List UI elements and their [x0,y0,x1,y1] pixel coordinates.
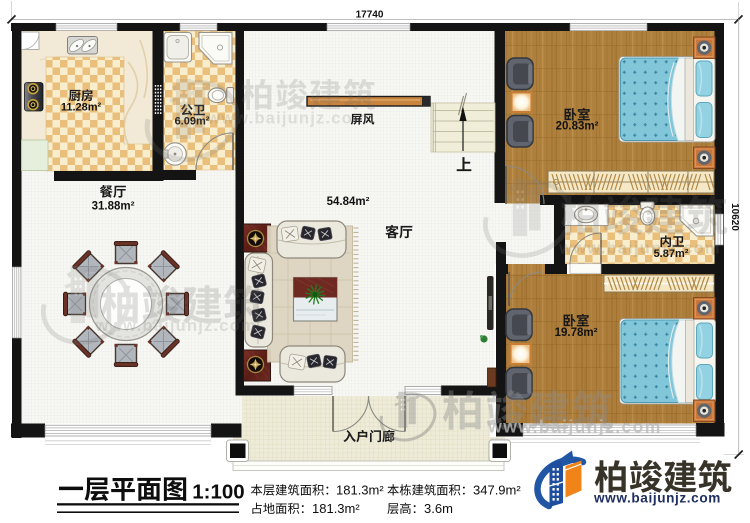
svg-text:www.baijunjz.com: www.baijunjz.com [558,240,721,258]
svg-text:www.baijunjz.com: www.baijunjz.com [206,110,369,128]
svg-text:17740: 17740 [356,10,384,21]
svg-text:19.78m²: 19.78m² [555,327,598,339]
svg-text:www.baijunjz.com: www.baijunjz.com [94,317,257,335]
svg-text:11.28m²: 11.28m² [61,102,102,114]
svg-text:181.3m²: 181.3m² [336,483,384,498]
svg-text:10620: 10620 [729,203,740,231]
svg-text:54.84m²: 54.84m² [327,196,370,208]
svg-text:www.baijunjz.com: www.baijunjz.com [487,417,661,437]
svg-text:1:100: 1:100 [192,481,244,504]
svg-text:www.baijunjz.com: www.baijunjz.com [593,491,721,506]
svg-text:181.3m²: 181.3m² [312,501,360,516]
svg-text:31.88m²: 31.88m² [92,201,135,213]
svg-text:347.9m²: 347.9m² [473,483,521,498]
svg-text:20.83m²: 20.83m² [556,121,599,133]
svg-text:3.6m: 3.6m [424,501,453,516]
